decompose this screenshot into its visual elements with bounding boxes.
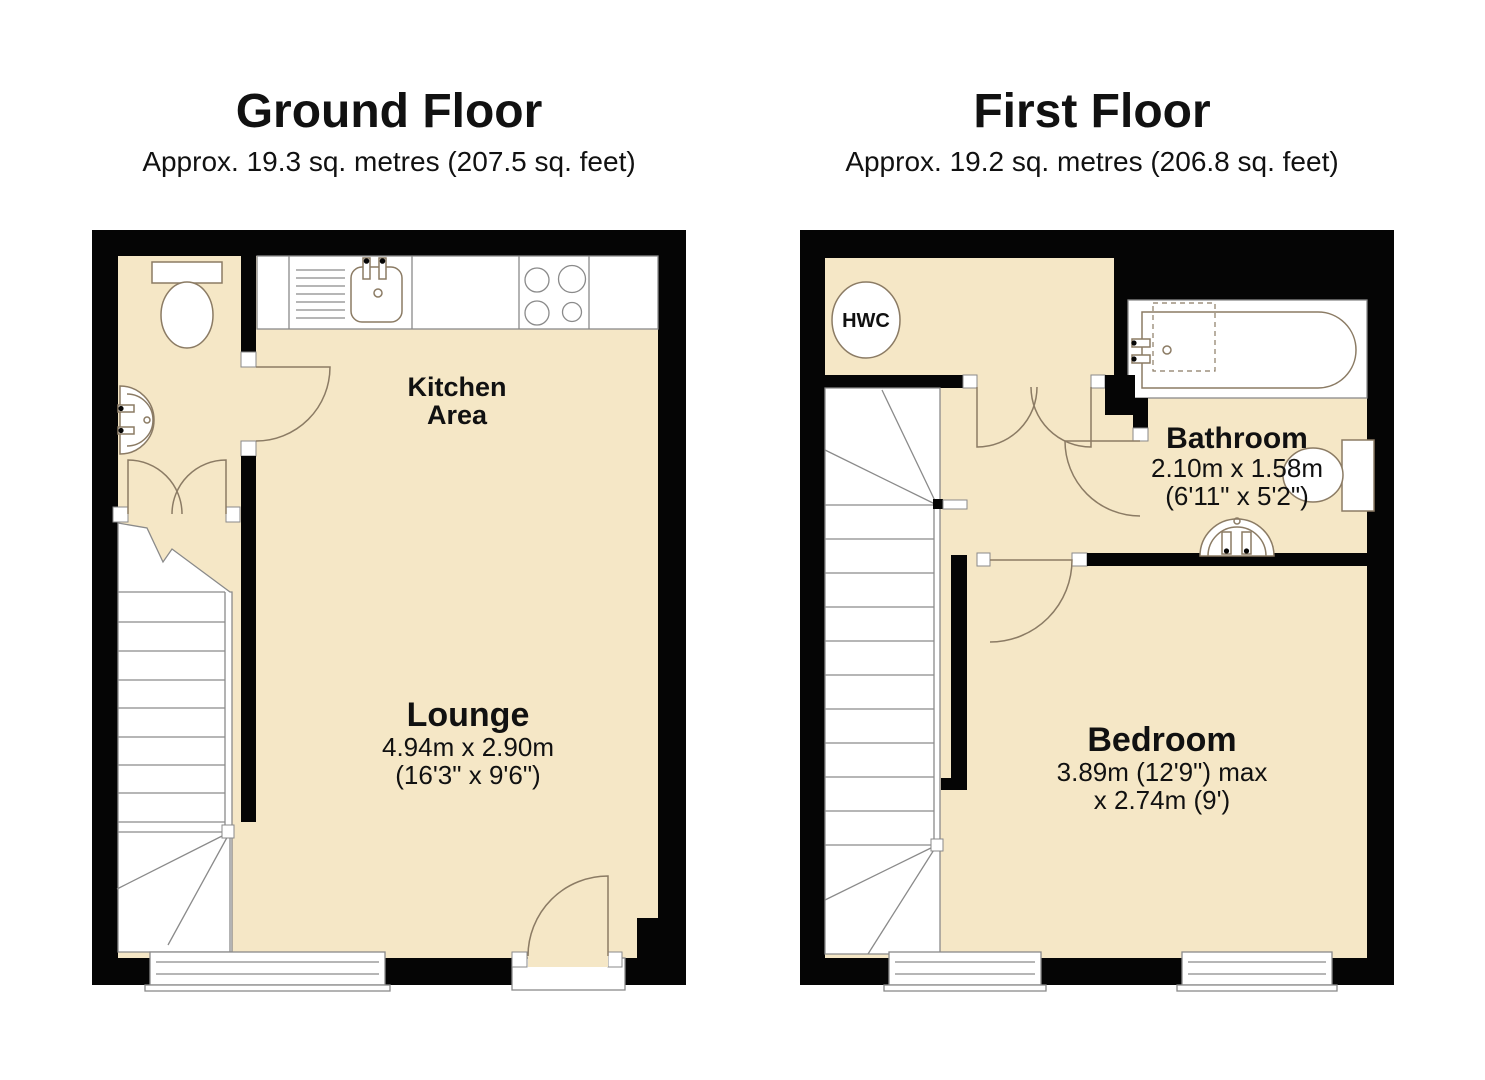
lounge-label: Lounge: [407, 696, 530, 734]
ground-floor-title: Ground Floor: [236, 85, 543, 138]
ground-wall-step: [637, 918, 658, 958]
bedroom-label: Bedroom: [1087, 721, 1236, 759]
first-floor-plan: First Floor Approx. 19.2 sq. metres (206…: [800, 85, 1394, 991]
newel-post: [222, 825, 234, 838]
lounge-dim-metric: 4.94m x 2.90m: [382, 732, 554, 762]
ground-window-icon: [145, 952, 390, 991]
hot-water-cylinder-icon: HWC: [832, 282, 900, 358]
wc-partition-wall: [241, 256, 256, 822]
kitchen-label-line2: Area: [427, 400, 488, 430]
first-floor-title: First Floor: [973, 85, 1210, 138]
newel-post: [931, 839, 943, 851]
floorplan-canvas: Ground Floor Approx. 19.3 sq. metres (20…: [0, 0, 1485, 1080]
first-window-right-icon: [1177, 952, 1337, 991]
kitchen-label-line1: Kitchen: [407, 372, 506, 402]
lounge-dim-imperial: (16'3" x 9'6"): [395, 760, 540, 790]
handrail: [943, 500, 967, 509]
bedroom-dim-line2: x 2.74m (9'): [1094, 785, 1230, 815]
floorplan-svg: Ground Floor Approx. 19.3 sq. metres (20…: [0, 0, 1485, 1080]
first-window-left-icon: [884, 952, 1046, 991]
ground-floor-plan: Ground Floor Approx. 19.3 sq. metres (20…: [92, 85, 686, 991]
bath-icon: [1128, 300, 1367, 398]
bathroom-label: Bathroom: [1166, 422, 1308, 455]
bedroom-dim-line1: 3.89m (12'9") max: [1057, 757, 1268, 787]
bathroom-dim-imperial: (6'11" x 5'2"): [1165, 481, 1309, 511]
ground-stairs-icon: [117, 523, 234, 952]
first-floor-subtitle: Approx. 19.2 sq. metres (206.8 sq. feet): [845, 146, 1338, 177]
bath-recess-wall: [1114, 258, 1367, 300]
kitchen-counter-icon: [257, 256, 658, 329]
ground-floor-subtitle: Approx. 19.3 sq. metres (207.5 sq. feet): [142, 146, 635, 177]
newel-post: [933, 499, 943, 509]
kitchen-sink-icon: [351, 258, 402, 322]
hwc-label: HWC: [842, 310, 890, 332]
bathroom-dim-metric: 2.10m x 1.58m: [1151, 453, 1323, 483]
